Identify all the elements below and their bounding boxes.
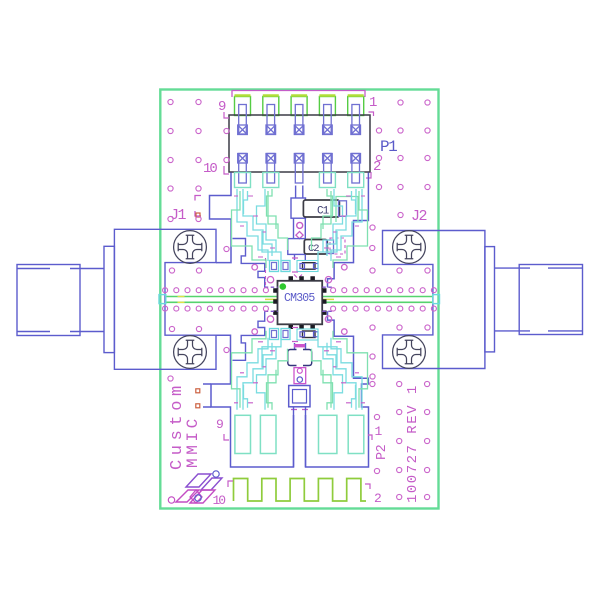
- svg-text:1: 1: [369, 95, 377, 111]
- svg-text:10: 10: [213, 493, 226, 508]
- svg-text:1: 1: [375, 424, 383, 439]
- svg-text:2: 2: [373, 159, 381, 175]
- svg-text:100727 REV 1: 100727 REV 1: [405, 384, 421, 503]
- svg-text:CM305: CM305: [284, 292, 315, 305]
- svg-text:P1: P1: [380, 138, 397, 156]
- svg-text:MMIC: MMIC: [184, 415, 202, 468]
- svg-text:9: 9: [216, 417, 223, 432]
- svg-text:P2: P2: [375, 444, 390, 460]
- svg-text:J2: J2: [411, 208, 427, 225]
- svg-text:10: 10: [203, 161, 217, 177]
- svg-text:9: 9: [218, 99, 226, 115]
- svg-text:2: 2: [374, 491, 381, 506]
